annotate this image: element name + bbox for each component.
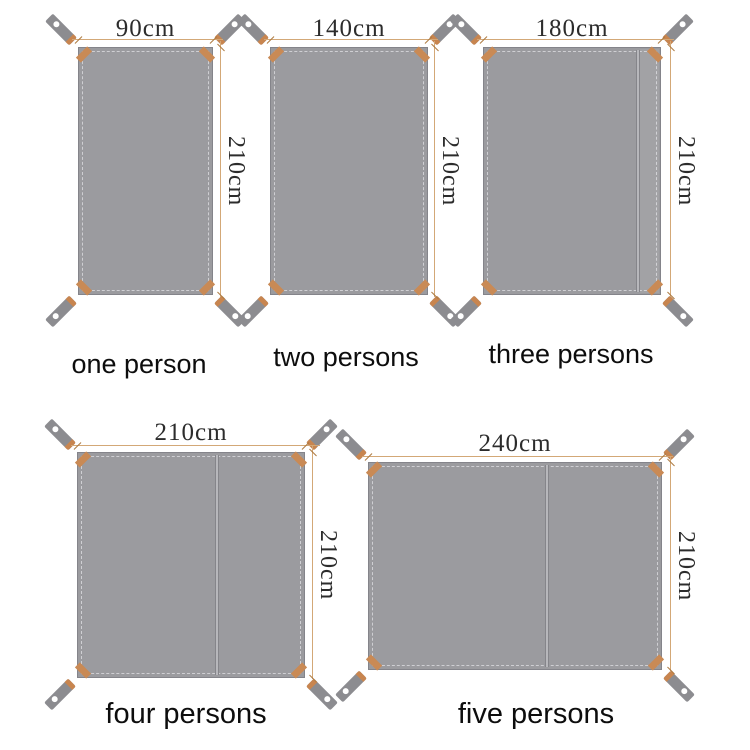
corner-patch — [481, 279, 497, 295]
height-dimension-label: 210cm — [673, 47, 698, 295]
corner-patch — [75, 662, 91, 678]
stitch-line — [372, 466, 658, 666]
fold-seam — [545, 465, 549, 667]
width-dimension-label: 140cm — [270, 16, 428, 41]
caption-three-persons: three persons — [461, 339, 681, 370]
corner-patch — [199, 46, 215, 62]
stitch-line — [487, 51, 657, 291]
width-dimension-label: 180cm — [483, 16, 661, 41]
corner-patch — [76, 279, 92, 295]
corner-strap-top-left — [237, 14, 269, 46]
caption-two-persons: two persons — [236, 342, 456, 373]
corner-patch — [268, 279, 284, 295]
stitch-line — [274, 51, 424, 291]
height-dimension-line — [312, 446, 313, 679]
width-dimension-label: 90cm — [78, 16, 213, 41]
width-dimension-label: 210cm — [77, 420, 305, 445]
corner-patch — [268, 46, 284, 62]
corner-strap-bottom-left — [45, 296, 77, 328]
height-dimension-line — [434, 41, 435, 297]
corner-strap-top-right — [662, 14, 694, 46]
corner-patch — [75, 451, 91, 467]
corner-strap-bottom-right — [663, 671, 695, 703]
height-dimension-line — [670, 456, 671, 671]
corner-strap-top-left — [450, 14, 482, 46]
mat-one-person — [78, 47, 213, 295]
corner-patch — [414, 46, 430, 62]
corner-patch — [366, 461, 382, 477]
corner-patch — [76, 46, 92, 62]
height-dimension-label: 210cm — [437, 47, 462, 295]
corner-patch — [199, 279, 215, 295]
corner-patch — [414, 279, 430, 295]
mat-five-persons — [368, 462, 662, 670]
fold-panel — [640, 49, 659, 293]
corner-strap-bottom-left — [450, 296, 482, 328]
mat-three-persons — [483, 47, 661, 295]
corner-strap-bottom-left — [237, 296, 269, 328]
corner-patch — [648, 461, 664, 477]
caption-five-persons: five persons — [426, 698, 646, 731]
mat-four-persons — [77, 452, 305, 678]
corner-strap-bottom-left — [44, 679, 76, 711]
size-diagram: 90cm 210cm one person 140cm 210cm two pe… — [0, 0, 750, 750]
stitch-line — [81, 456, 301, 674]
corner-patch — [291, 451, 307, 467]
height-dimension-label: 210cm — [315, 452, 340, 678]
height-dimension-line — [670, 41, 671, 297]
height-dimension-line — [220, 41, 221, 297]
corner-strap-top-left — [45, 14, 77, 46]
height-dimension-label: 210cm — [673, 462, 698, 670]
fold-seam — [215, 455, 219, 675]
mat-two-persons — [270, 47, 428, 295]
corner-patch — [291, 662, 307, 678]
stitch-line — [82, 51, 209, 291]
width-dimension-label: 240cm — [368, 431, 662, 456]
height-dimension-label: 210cm — [223, 47, 248, 295]
corner-strap-bottom-right — [306, 679, 338, 711]
corner-strap-bottom-right — [662, 296, 694, 328]
corner-patch — [481, 46, 497, 62]
corner-patch — [366, 654, 382, 670]
caption-four-persons: four persons — [76, 698, 296, 731]
caption-one-person: one person — [29, 349, 249, 380]
corner-patch — [648, 654, 664, 670]
